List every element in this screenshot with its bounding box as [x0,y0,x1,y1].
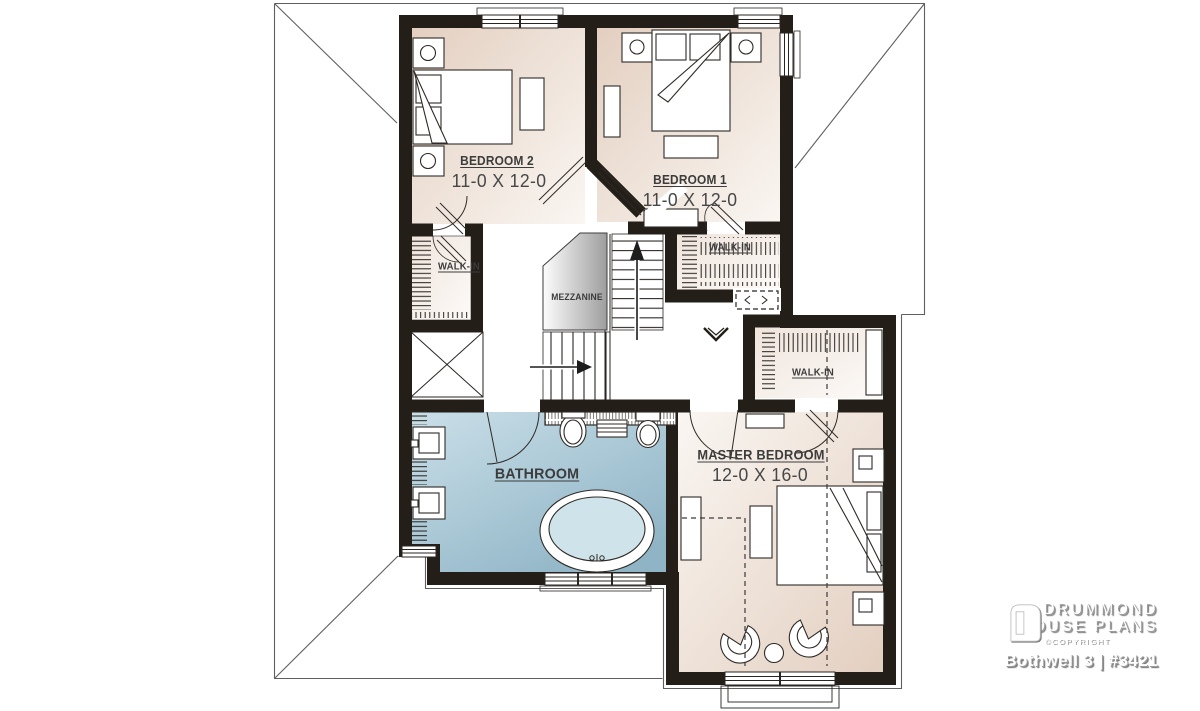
dresser-icon [750,506,772,558]
bed-icon [413,70,512,144]
walkin-bedroom2-label: WALK-IN [438,262,480,273]
nightstand-icon [853,449,884,482]
bathtub-icon [540,490,654,572]
floor-plan-page: BEDROOM 2 11-0 X 12-0 BEDROOM 1 11-0 X 1… [0,0,1200,711]
bath-cabinet-icon [597,420,627,437]
plan-title: Bothwell 3 | #3421 [1004,651,1158,671]
wall-master-left [666,400,678,585]
bedroom2-dimensions: 11-0 X 12-0 [452,170,547,192]
drummond-door-icon [1004,601,1042,645]
wardrobe-icon [866,330,882,395]
dresser-icon [520,78,544,130]
bathroom-label: BATHROOM [495,466,579,483]
toilet-icon [636,412,660,448]
window-master-bottom-bay [721,672,839,708]
bedroom1-label: BEDROOM 1 [653,173,727,187]
staircase [530,233,663,406]
bed-icon [777,486,883,585]
window-bedroom2-top [477,8,563,28]
master-bedroom-label: MASTER BEDROOM [697,448,824,463]
dresser-icon [664,136,718,158]
nightstand-icon [413,38,444,68]
bedroom1-dimensions: 11-0 X 12-0 [643,189,738,211]
window-bedroom1-right [780,31,800,78]
wall-top [399,15,793,28]
window-bathroom-left [402,546,436,557]
armoire-icon [681,497,701,560]
brand-block: DRUMMOND HOUSE PLANS ©COPYRIGHT Bothwell… [1004,601,1158,671]
open-shaft-x-box [411,332,483,397]
shelf-icon [746,414,784,428]
bed-icon [652,30,730,131]
wall-wing-right [883,315,896,685]
walkin-master-label: WALK-IN [792,368,834,379]
wall-left [399,15,412,557]
wall-wing-left [666,585,679,685]
nightstand-icon [622,33,652,62]
window-bedroom1-top [734,8,782,28]
side-table-icon [765,644,784,663]
wall-xbox-top [399,320,483,332]
nightstand-icon [731,33,761,62]
wall-bedroom-divider [585,27,597,167]
walkin-bedroom1-label: WALK-IN [709,243,751,254]
mezzanine-platform [543,233,607,330]
linen-niche [733,288,781,311]
master-bedroom-dimensions: 12-0 X 16-0 [712,464,808,486]
nightstand-icon [413,146,444,176]
mezzanine-label: MEZZANINE [551,292,603,302]
bedroom2-label: BEDROOM 2 [460,154,534,168]
sink-icon [560,412,586,447]
nightstand-icon [853,592,884,625]
wall-walkin2-right [471,224,483,332]
dresser-icon [604,86,620,137]
